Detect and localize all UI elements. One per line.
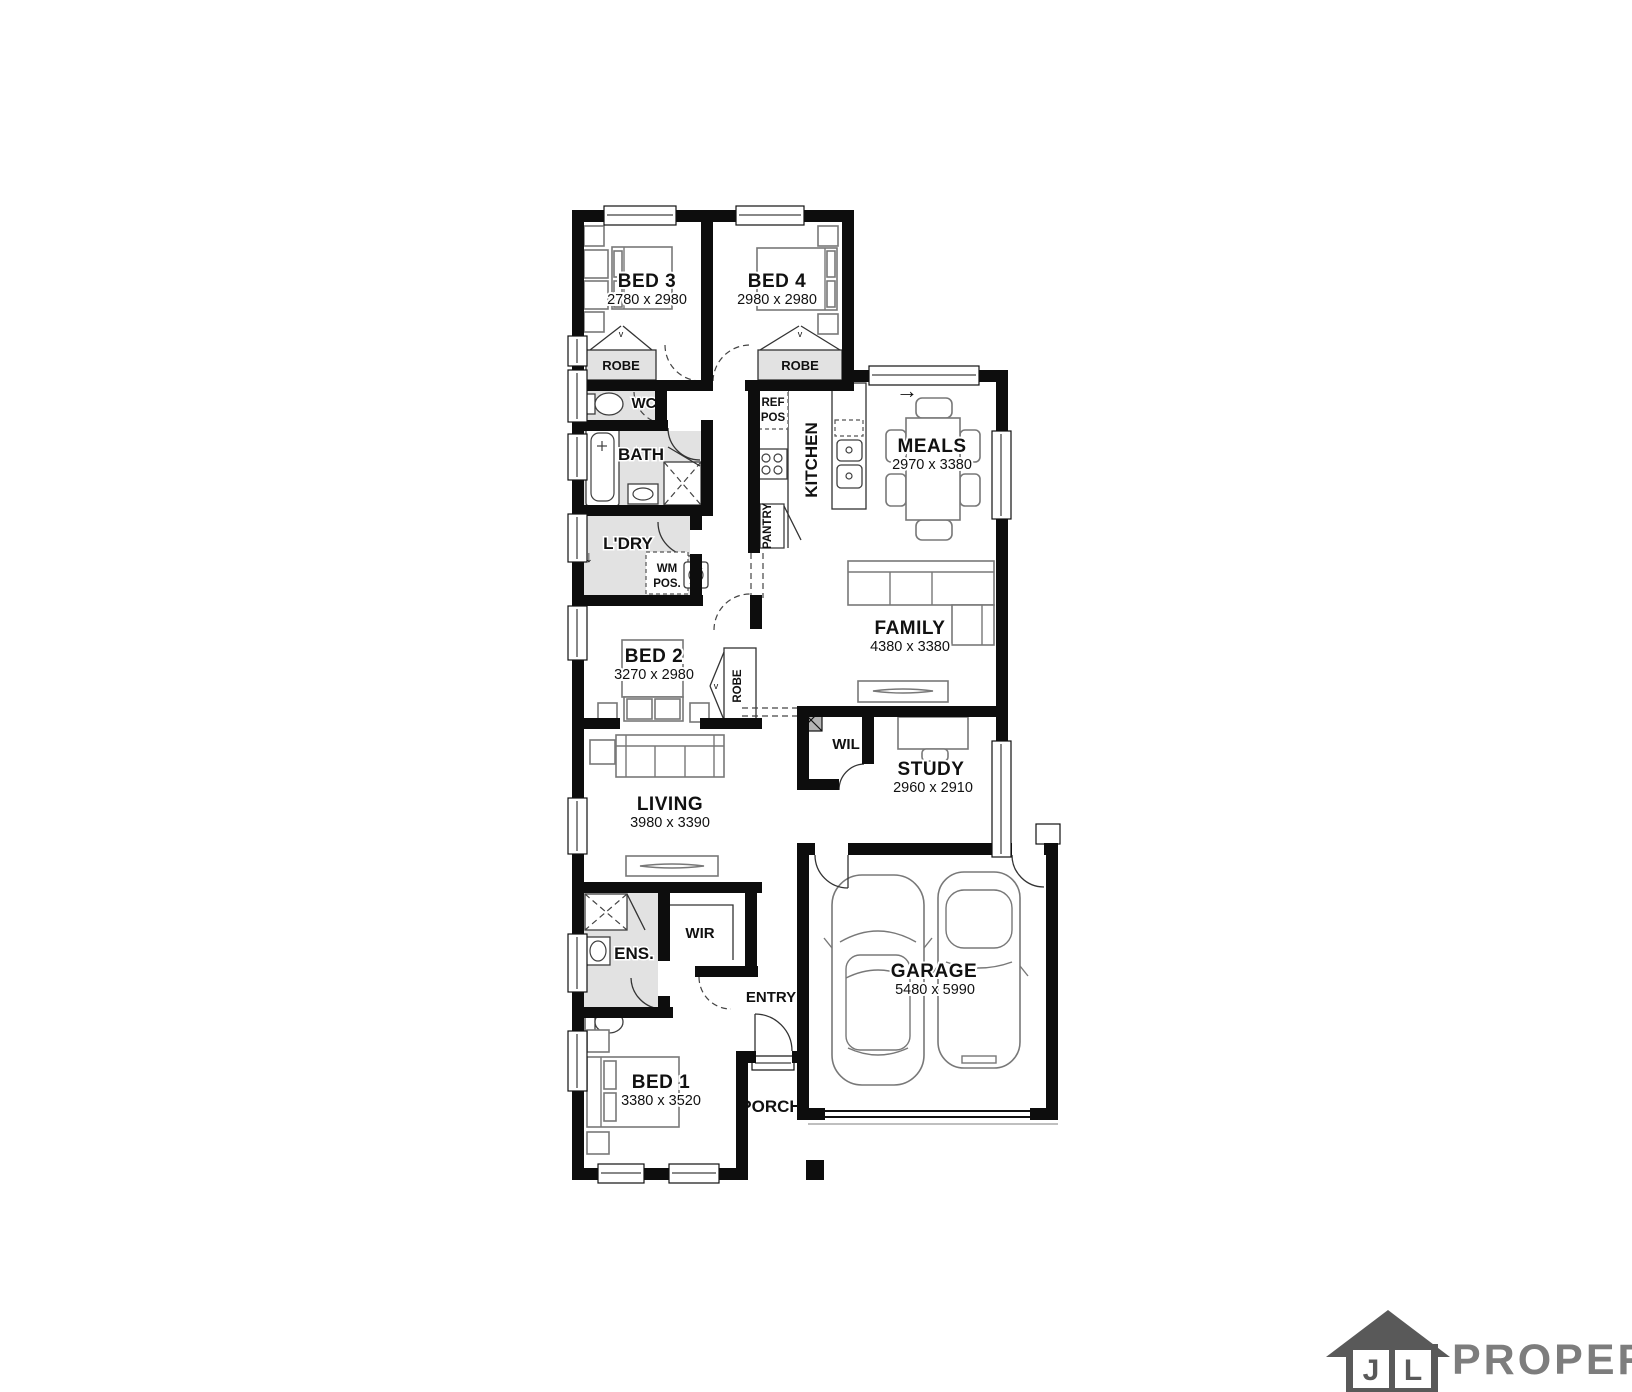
window-icon — [598, 1164, 644, 1183]
pantry-label: PANTRY — [762, 503, 774, 549]
shower-icon — [664, 462, 701, 505]
family-area: FAMILY 4380 x 3380 — [848, 561, 994, 702]
meals-area: → MEALS 2970 x 3380 — [886, 378, 980, 540]
external-step — [1036, 824, 1060, 844]
room-label-bed4: BED 4 — [748, 271, 806, 292]
room-label-bed1: BED 1 — [632, 1072, 690, 1093]
wc-label: WC — [632, 395, 657, 412]
sofa-icon — [848, 561, 994, 605]
porch-area: PORCH — [740, 1097, 801, 1116]
window-icon — [869, 366, 979, 385]
window-icon — [568, 934, 587, 992]
room-dims-study: 2960 x 2910 — [893, 780, 973, 796]
window-icon — [736, 206, 804, 225]
room-dims-garage: 5480 x 5990 — [895, 982, 975, 998]
chair-icon — [916, 398, 952, 418]
room-dims-bed1: 3380 x 3520 — [621, 1093, 701, 1109]
window-icon — [568, 370, 587, 422]
shower-icon — [585, 894, 627, 930]
walk-in-robe: WIR — [667, 905, 733, 1009]
room-dims-living: 3980 x 3390 — [630, 815, 710, 831]
sink-icon — [837, 440, 862, 461]
floor-plan: v BED 3 2780 x 2980 ROBE v BED 4 2980 x … — [0, 0, 1632, 1392]
window-icon — [992, 741, 1011, 857]
robe-door-marker: v — [798, 329, 803, 339]
window-icon — [604, 206, 676, 225]
room-label-garage: GARAGE — [891, 961, 977, 982]
logo-letter-l: L — [1404, 1354, 1422, 1387]
chair-icon — [916, 520, 952, 540]
room-label-study: STUDY — [898, 759, 965, 780]
chair-icon — [886, 474, 906, 506]
window-icon — [568, 606, 587, 660]
logo-wordmark: PROPERTY — [1452, 1336, 1632, 1384]
window-icon — [568, 1031, 587, 1091]
room-label-bed3: BED 3 — [618, 271, 676, 292]
room-label-bed2: BED 2 — [625, 646, 683, 667]
room-label-meals: MEALS — [898, 436, 967, 457]
wil-label: WIL — [832, 736, 860, 753]
porch-label: PORCH — [740, 1097, 801, 1116]
living-area: LIVING 3980 x 3390 — [590, 735, 724, 876]
tv-unit-icon — [626, 856, 718, 876]
tv-unit-icon — [858, 681, 948, 702]
wm-pos-label-2: POS. — [653, 578, 680, 590]
brand-logo: J L PROPERTY — [1326, 1310, 1632, 1392]
sofa-icon — [616, 735, 724, 777]
ref-pos-label-2: POS — [761, 412, 786, 424]
robe-door-marker: v — [714, 681, 719, 691]
room-label-family: FAMILY — [875, 618, 946, 639]
room-dims-meals: 2970 x 3380 — [892, 457, 972, 473]
window-icon — [992, 431, 1011, 519]
chair-icon — [960, 474, 980, 506]
wir-label: WIR — [685, 925, 714, 942]
ensuite-label: ENS. — [614, 944, 654, 963]
logo-letter-j: J — [1363, 1354, 1380, 1387]
desk-icon — [898, 717, 968, 749]
room-dims-family: 4380 x 3380 — [870, 639, 950, 655]
robe-label-bed4: ROBE — [781, 358, 819, 373]
room-label-living: LIVING — [637, 794, 703, 815]
wm-pos-label-1: WM — [657, 563, 677, 575]
wil-closet: WIL — [800, 709, 864, 790]
window-icon — [568, 434, 587, 480]
dashed-openings — [742, 553, 797, 716]
study-area: STUDY 2960 x 2910 — [893, 717, 973, 796]
room-dims-bed3: 2780 x 2980 — [607, 292, 687, 308]
ref-pos-label-1: REF — [762, 397, 785, 409]
porch-post — [806, 1160, 824, 1180]
bedroom-2: v ROBE BED 2 3270 x 2980 — [598, 594, 756, 722]
window-icon — [568, 336, 587, 366]
kitchen: REF POS PANTRY KITCHEN — [758, 383, 866, 549]
floor-plan-page: v BED 3 2780 x 2980 ROBE v BED 4 2980 x … — [0, 0, 1632, 1392]
bedroom-1: BED 1 3380 x 3520 — [587, 1030, 701, 1154]
entry-label: ENTRY — [746, 989, 796, 1006]
kitchen-label: KITCHEN — [802, 422, 821, 498]
robe-label-bed2: ROBE — [732, 669, 744, 703]
room-dims-bed2: 3270 x 2980 — [614, 667, 694, 683]
laundry-label: L'DRY — [603, 534, 653, 553]
window-icon — [568, 514, 587, 562]
robe-label-bed3: ROBE — [602, 358, 640, 373]
garage-area: GARAGE 5480 x 5990 — [808, 824, 1060, 1124]
bath-label: BATH — [618, 445, 664, 464]
room-dims-bed4: 2980 x 2980 — [737, 292, 817, 308]
robe-door-marker: v — [619, 329, 624, 339]
window-icon — [669, 1164, 719, 1183]
cooktop-icon — [759, 449, 787, 479]
window-icon — [568, 798, 587, 854]
